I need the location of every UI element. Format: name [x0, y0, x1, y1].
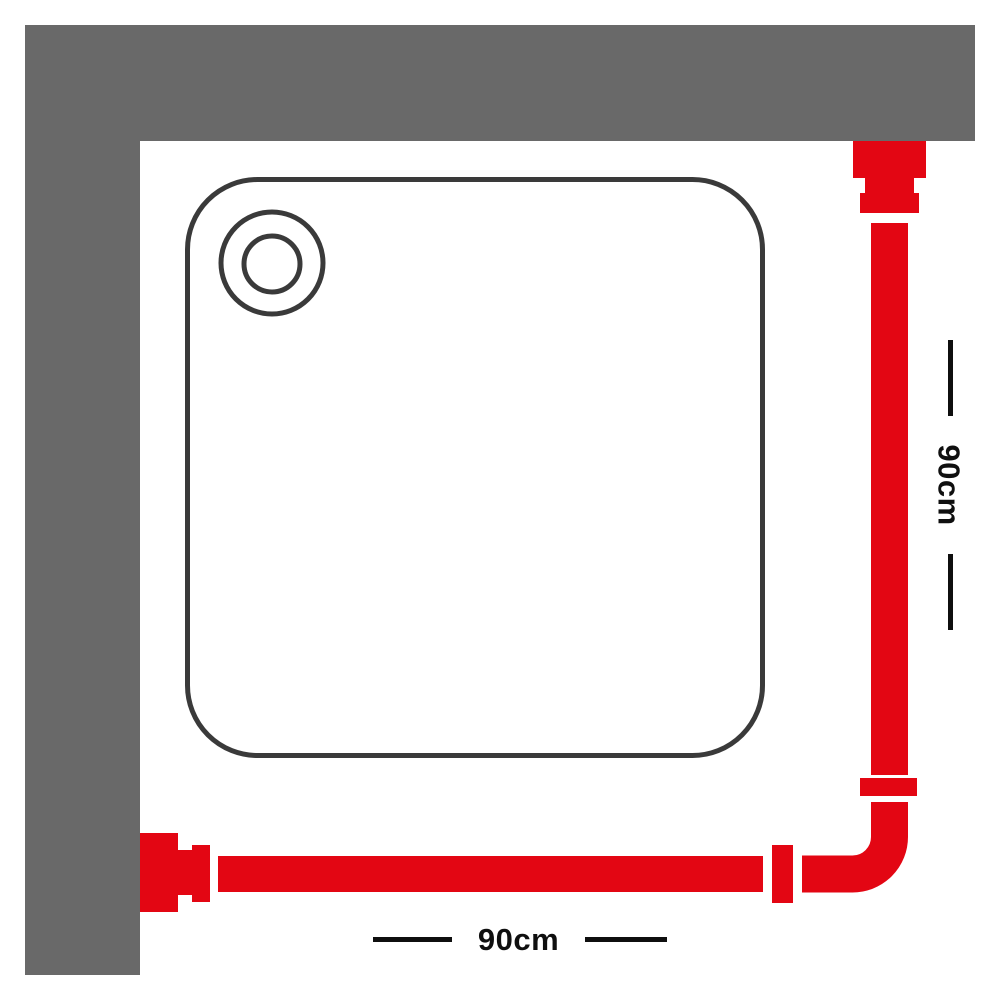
dimension-label-vertical: 90cm	[932, 444, 967, 525]
shower-tray	[188, 180, 763, 756]
shower-tray-group	[188, 180, 763, 756]
rail-bracket-flange-top	[860, 193, 919, 213]
rail-bracket-neck-left	[178, 850, 192, 895]
rail-bracket-neck-top	[865, 178, 914, 194]
rail-wall-bracket-left	[140, 833, 178, 912]
rail-pipe-horizontal	[218, 856, 763, 892]
rail-wall-bracket-top	[853, 141, 926, 178]
dimension-tick-top	[948, 340, 953, 416]
dimension-tick-right	[585, 937, 667, 942]
wall-top	[25, 25, 975, 141]
rail-corner-elbow	[802, 802, 890, 874]
dimension-vertical: 90cm	[932, 340, 967, 630]
dimension-tick-left	[373, 937, 452, 942]
rail-connector-horizontal	[772, 845, 793, 903]
diagram-canvas: 90cm 90cm	[0, 0, 1000, 1000]
dimension-horizontal: 90cm	[373, 922, 667, 957]
wall-left	[25, 25, 140, 975]
dimension-tick-bottom	[948, 554, 953, 630]
rail-pipe-vertical	[871, 223, 908, 775]
rail-bracket-flange-left	[192, 845, 210, 902]
dimension-label-horizontal: 90cm	[478, 922, 559, 957]
shower-rail-diagram: 90cm 90cm	[0, 0, 1000, 1000]
rail-connector-vertical	[860, 778, 917, 796]
